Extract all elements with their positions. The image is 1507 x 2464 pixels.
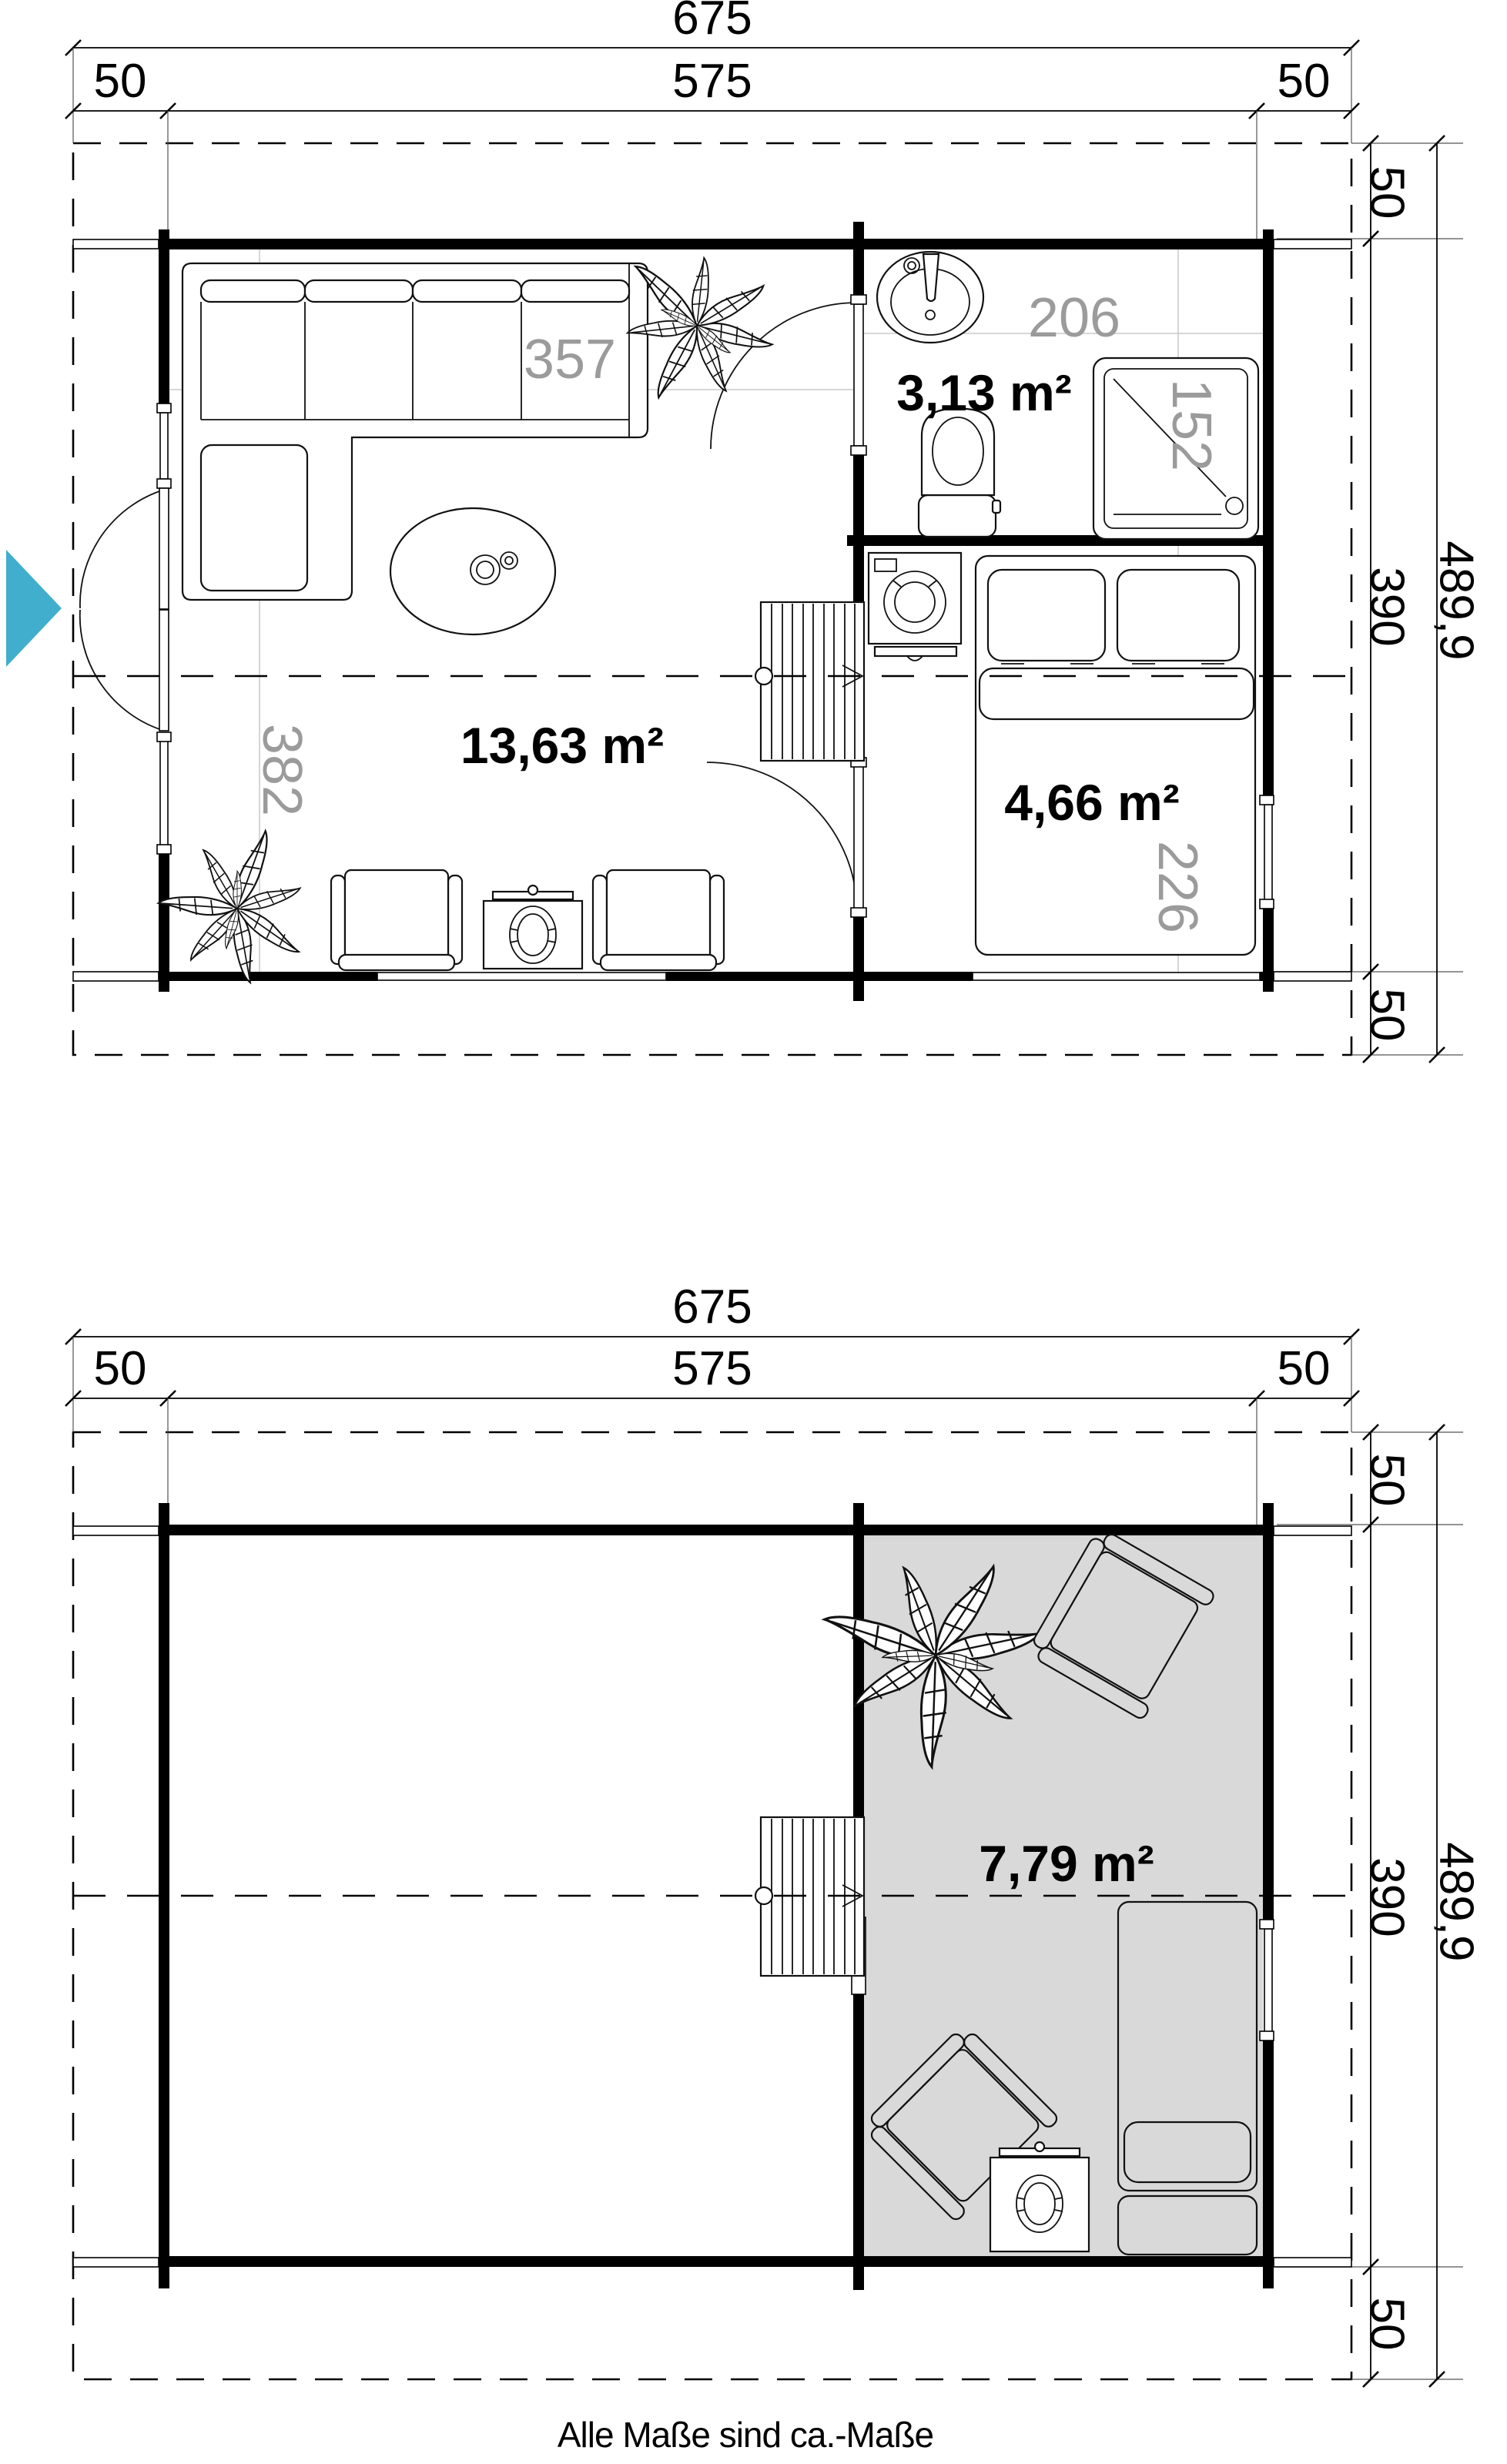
gf-living-area-label: 13,63 m² — [460, 717, 664, 774]
entrance-arrow-icon — [6, 550, 62, 667]
uf-dim-depth-bottom: 50 — [1360, 2298, 1413, 2351]
gf-window-right-bedroom — [1264, 805, 1272, 901]
gf-window-bottom-bedroom — [973, 973, 1260, 980]
uf-beam-top-left — [73, 1526, 159, 1535]
gf-bedroom-area-label: 4,66 m² — [1004, 774, 1179, 831]
gf-dim-total-width: 675 — [672, 0, 752, 45]
gf-dim-depth-top: 50 — [1360, 166, 1413, 219]
uf-loft-area-label: 7,79 m² — [979, 1835, 1154, 1892]
gf-dim-depth-bottom: 50 — [1360, 989, 1413, 1042]
ground-floor-plan: 675 50 575 50 50 390 50 489,9 — [6, 0, 1482, 1063]
uf-dim-side-left: 50 — [94, 1342, 147, 1395]
gf-stove — [484, 885, 582, 969]
uf-right-dimensions: 50 390 50 489,9 — [1277, 1424, 1482, 2387]
gf-dim-main-depth: 390 — [1360, 567, 1413, 646]
gf-right-dimensions: 50 390 50 489,9 — [1277, 136, 1482, 1063]
gf-sink — [877, 252, 983, 343]
gf-plant-corner — [146, 822, 316, 996]
gf-beam-bottom-left — [73, 972, 159, 981]
uf-beam-top-right — [1274, 1526, 1351, 1535]
gf-armchair-left — [331, 870, 462, 970]
upper-floor-plan: 675 50 575 50 50 390 50 489,9 — [65, 1281, 1482, 2387]
uf-window-right — [1264, 1929, 1272, 2033]
gf-window-bottom-living — [377, 973, 666, 980]
gf-top-dimensions: 675 50 575 50 — [65, 0, 1359, 239]
gf-beam-top-left — [73, 239, 159, 249]
uf-stair-newel — [755, 1887, 772, 1904]
uf-beam-bottom-right — [1274, 2258, 1351, 2267]
gf-dim-main-width: 575 — [672, 55, 752, 108]
uf-dim-total-width: 675 — [672, 1281, 752, 1334]
gf-toilet — [919, 409, 1000, 537]
gf-window-left-lower — [160, 741, 168, 851]
gf-double-bed — [976, 556, 1255, 955]
uf-stove — [990, 2142, 1089, 2251]
gf-dim-side-right: 50 — [1278, 55, 1331, 108]
floor-plan-drawing: 675 50 575 50 50 390 50 489,9 — [0, 0, 1507, 2464]
uf-dim-main-depth: 390 — [1360, 1857, 1413, 1937]
gf-armchair-right — [593, 870, 724, 970]
uf-beam-bottom-left — [73, 2258, 159, 2267]
gf-bath-area-label: 3,13 m² — [896, 364, 1071, 421]
gf-stair-newel — [755, 668, 772, 685]
gf-bedroom-depth-label: 226 — [1147, 841, 1208, 933]
uf-dim-total-depth: 489,9 — [1429, 1842, 1482, 1961]
gf-dim-total-depth: 489,9 — [1429, 541, 1482, 660]
gf-beam-bottom-right — [1274, 972, 1351, 981]
gf-washing-machine — [869, 553, 961, 661]
gf-coffee-table — [390, 508, 555, 634]
gf-bedroom-door — [707, 758, 866, 917]
gf-living-width-label: 357 — [524, 329, 616, 390]
gf-window-left-upper — [160, 413, 168, 479]
uf-dim-main-width: 575 — [672, 1342, 752, 1395]
uf-dim-side-right: 50 — [1278, 1342, 1331, 1395]
uf-top-dimensions: 675 50 575 50 — [65, 1281, 1359, 1525]
uf-dim-depth-top: 50 — [1360, 1454, 1413, 1507]
gf-bath-width-label: 206 — [1028, 287, 1120, 349]
footer-note: Alle Maße sind ca.-Maße — [558, 2415, 933, 2455]
uf-single-bed — [1118, 1902, 1257, 2255]
gf-stairs — [761, 602, 864, 761]
gf-entrance-double-door — [80, 488, 169, 731]
gf-living-depth-label: 382 — [251, 724, 313, 816]
gf-bath-depth-label: 152 — [1160, 379, 1222, 471]
gf-bathroom-door — [711, 295, 866, 455]
gf-dim-side-left: 50 — [94, 55, 147, 108]
gf-beam-top-right — [1274, 239, 1351, 249]
